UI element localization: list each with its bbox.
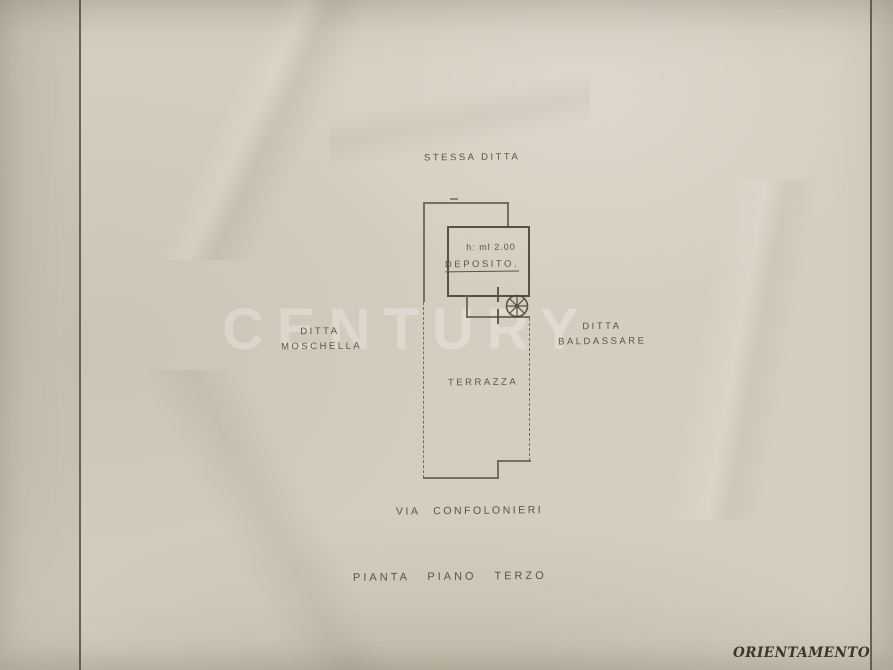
photographed-floor-plan-sheet: CENTURY STESSA DITTA h: ml 2.00 DEPOSITO…: [0, 0, 893, 670]
label-ditta-moschella-line1: DITTA: [281, 324, 359, 340]
plan-boundary-left-dashed: [423, 302, 424, 478]
paper-crease: [80, 370, 460, 670]
plan-step-wall-left: [466, 295, 468, 318]
label-ditta-baldassare: DITTA BALDASSARE: [558, 319, 646, 350]
plan-outer-wall-top: [424, 202, 509, 204]
label-ditta-baldassare-line2: BALDASSARE: [558, 334, 646, 350]
door-axis-tick-lower: [497, 309, 499, 324]
label-ditta-moschella: DITTA MOSCHELLA: [281, 324, 359, 355]
label-deposito-text: DEPOSITO.: [445, 259, 519, 273]
label-room-height: h: ml 2.00: [462, 240, 520, 256]
label-terrazza: TERRAZZA: [448, 375, 508, 391]
left-margin-strip: [0, 0, 80, 670]
plan-bottom-notch-side: [497, 460, 499, 478]
paper-crease: [95, 0, 425, 260]
label-orientamento: ORIENTAMENTO: [733, 645, 859, 661]
plan-boundary-left-solid: [423, 202, 425, 302]
label-stessa-ditta: STESSA DITTA: [424, 150, 514, 166]
plan-bottom-notch-top: [498, 460, 531, 462]
paper-crease: [590, 180, 890, 520]
label-deposito: DEPOSITO.: [445, 257, 507, 273]
label-ditta-baldassare-line1: DITTA: [558, 319, 646, 335]
plan-outer-wall-right-upper: [507, 202, 509, 227]
plan-boundary-right-dashed: [529, 318, 530, 461]
spiral-stair-icon: [505, 294, 529, 318]
plan-pencil-tick-top: [450, 198, 458, 200]
form-border-line-left: [79, 0, 81, 670]
label-ditta-moschella-line2: MOSCHELLA: [281, 339, 359, 355]
right-margin-strip: [872, 0, 893, 670]
plan-outer-wall-bottom: [423, 477, 499, 479]
form-border-line-right: [870, 0, 872, 670]
label-plan-caption: PIANTA PIANO TERZO: [353, 569, 521, 586]
label-street: VIA CONFOLONIERI: [396, 503, 526, 519]
door-axis-tick-upper: [497, 287, 499, 302]
